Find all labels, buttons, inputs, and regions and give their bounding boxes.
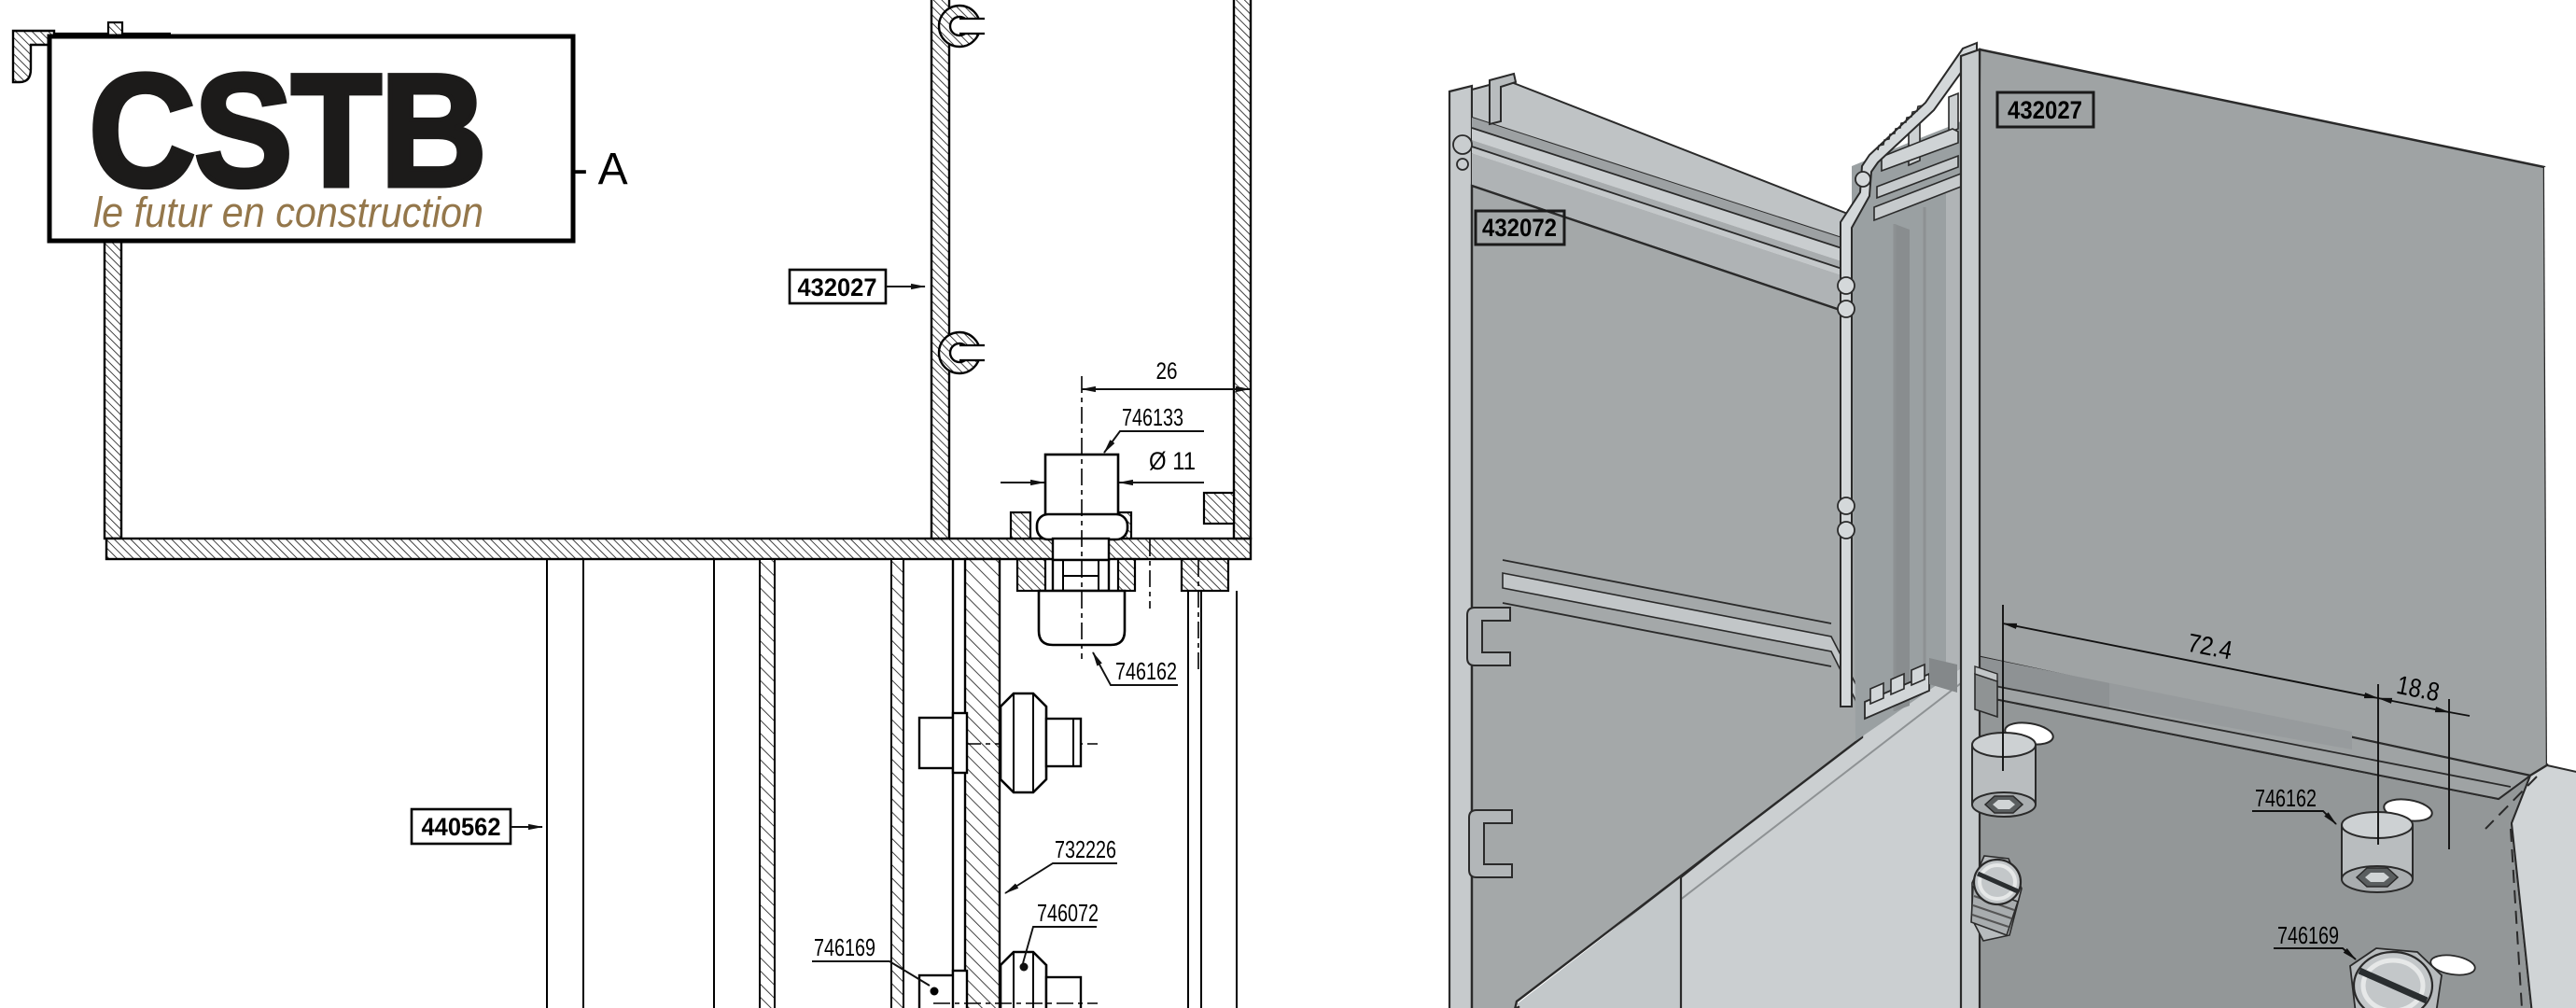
svg-text:746162: 746162 — [1115, 657, 1177, 685]
svg-text:746169: 746169 — [2277, 921, 2339, 949]
svg-text:432027: 432027 — [798, 273, 877, 301]
svg-text:26: 26 — [1156, 358, 1178, 385]
svg-text:746072: 746072 — [1037, 899, 1099, 927]
svg-text:le futur en construction: le futur en construction — [93, 189, 483, 236]
svg-text:Ø 11: Ø 11 — [1149, 447, 1196, 475]
svg-text:732226: 732226 — [1055, 835, 1116, 863]
svg-text:- A: - A — [573, 145, 628, 194]
svg-text:746169: 746169 — [814, 933, 875, 961]
svg-text:746133: 746133 — [1122, 403, 1183, 431]
svg-text:432072: 432072 — [1482, 214, 1557, 242]
svg-text:432027: 432027 — [2008, 96, 2082, 124]
svg-text:440562: 440562 — [422, 813, 501, 841]
svg-text:746162: 746162 — [2255, 784, 2317, 812]
